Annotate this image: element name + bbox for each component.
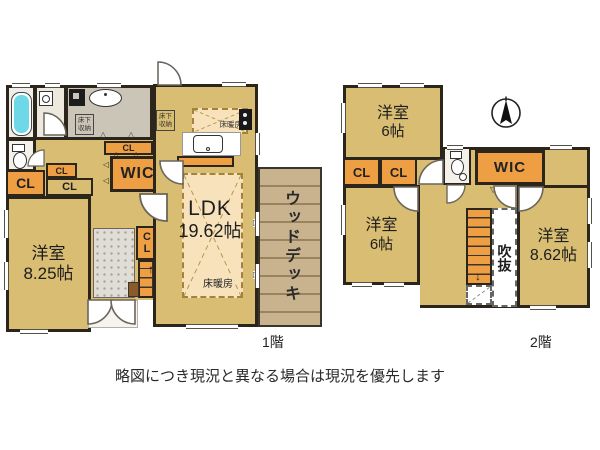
door-arc-icon <box>447 185 465 203</box>
bathtub-water <box>14 95 29 133</box>
window <box>587 198 592 224</box>
window <box>587 242 592 268</box>
burner-dot <box>243 121 247 125</box>
room-size: 19.62帖 <box>178 221 241 242</box>
closet-2f-b: CL <box>380 158 417 186</box>
window <box>530 305 556 310</box>
underfloor-storage-text: 床下収納 <box>159 113 172 128</box>
hanger-mark-icon: ◁ <box>103 161 109 169</box>
burner-dot <box>243 113 247 117</box>
door-arc-icon <box>419 160 443 184</box>
kitchen-sink-icon <box>193 135 223 153</box>
closet-label: CL <box>353 165 370 180</box>
wic-label: WIC <box>120 165 154 183</box>
room-name: 洋室 <box>32 244 66 264</box>
door-arc-icon <box>111 300 135 324</box>
stairs-2f: ↓ <box>466 208 492 285</box>
bedroom-1f: 洋室 8.25帖 <box>6 196 91 332</box>
wood-deck: ウッドデッキ <box>258 167 322 327</box>
bedroom-2f-top: 洋室 6帖 <box>343 85 443 160</box>
window <box>341 103 346 133</box>
window <box>255 264 260 288</box>
door-arc-icon <box>88 300 112 324</box>
window <box>222 82 246 87</box>
toilet-tank <box>12 144 25 152</box>
dashed-diagonal <box>468 287 490 303</box>
ldk-label: LDK 19.62帖 <box>165 195 255 243</box>
void-extension <box>466 285 492 305</box>
window <box>4 262 9 290</box>
door-arc-icon <box>160 161 183 184</box>
door-arc-icon <box>44 113 66 135</box>
door-arc-icon <box>394 187 418 211</box>
heating-label: 床暖房 <box>202 275 234 290</box>
window <box>384 282 404 287</box>
bathtub <box>11 92 32 136</box>
walk-in-closet-2f: WIC <box>475 150 545 185</box>
window <box>186 324 238 329</box>
room-size: 6帖 <box>370 236 393 253</box>
toilet-tank <box>450 151 462 159</box>
window <box>341 205 346 235</box>
closet-label: CL <box>56 166 68 176</box>
window <box>400 83 424 88</box>
utility-sink-basin <box>73 93 79 99</box>
faucet-dot <box>104 93 107 96</box>
washing-machine-icon <box>39 91 53 106</box>
opening-mark-icon: △ <box>100 131 106 139</box>
window <box>550 145 572 150</box>
closet-top-strip: CL <box>104 141 153 155</box>
closet-label: CL <box>390 165 407 180</box>
closet-small-1f: CL <box>46 163 77 178</box>
window <box>20 329 48 334</box>
window <box>12 83 30 88</box>
door-arc-icon <box>519 187 543 211</box>
void-label: 吹抜 <box>495 244 515 272</box>
underfloor-storage-text: 床下収納 <box>78 117 91 132</box>
counter-front <box>177 156 234 167</box>
door-arc-icon <box>158 62 181 85</box>
floor1-label: 1階 <box>262 332 284 352</box>
small-basin-icon <box>459 173 467 181</box>
room-size: 6帖 <box>381 123 404 140</box>
room-size: 8.25帖 <box>23 264 73 284</box>
void-area: 吹抜 <box>492 208 517 307</box>
room-name: 洋室 <box>377 105 409 123</box>
room-name: 洋室 <box>537 228 569 246</box>
closet-2f-a: CL <box>343 158 380 186</box>
closet-label: CL <box>62 181 77 194</box>
window <box>352 282 372 287</box>
room-name: LDK <box>188 197 232 221</box>
faucet-dot <box>206 147 210 151</box>
closet-label: CL <box>141 231 153 255</box>
wash-basin-icon <box>89 89 122 107</box>
door-arc-icon <box>28 150 44 166</box>
powder-room: 床下収納 <box>65 85 153 140</box>
disclaimer-caption: 略図につき現況と異なる場合は現況を優先します <box>0 365 560 386</box>
stove-icon <box>239 109 252 130</box>
room-size: 8.62帖 <box>530 247 577 265</box>
underfloor-storage-label: 床下収納 <box>75 114 94 135</box>
closet-wide-1f: CL <box>46 178 93 196</box>
stairs-down-arrow-icon: ↓ <box>475 269 481 283</box>
toilet-bowl-icon <box>13 152 27 169</box>
room-name: 洋室 <box>365 217 397 235</box>
window <box>255 212 260 236</box>
window <box>4 210 9 238</box>
window <box>447 145 463 150</box>
window <box>358 83 382 88</box>
window <box>45 83 60 88</box>
closet-big-1f: CL <box>6 170 45 196</box>
washing-machine-drum <box>42 95 50 103</box>
door-arc-icon <box>494 186 516 208</box>
opening-mark-icon: △ <box>128 131 134 139</box>
window <box>97 83 121 88</box>
utility-sink-icon <box>69 89 85 106</box>
floor2-label: 2階 <box>530 332 552 352</box>
toilet-2f <box>443 147 471 185</box>
hanger-mark-icon: ◁ <box>103 177 109 185</box>
bathroom <box>6 85 36 140</box>
closet-label: CL <box>16 175 35 191</box>
window <box>255 133 260 155</box>
step-box <box>128 282 139 297</box>
floor-plan-image: 床下収納 △ △ CL △ △ WIC ◁ ◁ CL CL CL 洋室 8.25… <box>0 0 600 450</box>
door-arc-icon <box>140 194 167 221</box>
compass-north-icon <box>489 95 523 129</box>
underfloor-storage-label: 床下収納 <box>156 110 175 131</box>
wic-label: WIC <box>494 159 526 176</box>
wood-deck-label: ウッドデッキ <box>278 190 302 304</box>
